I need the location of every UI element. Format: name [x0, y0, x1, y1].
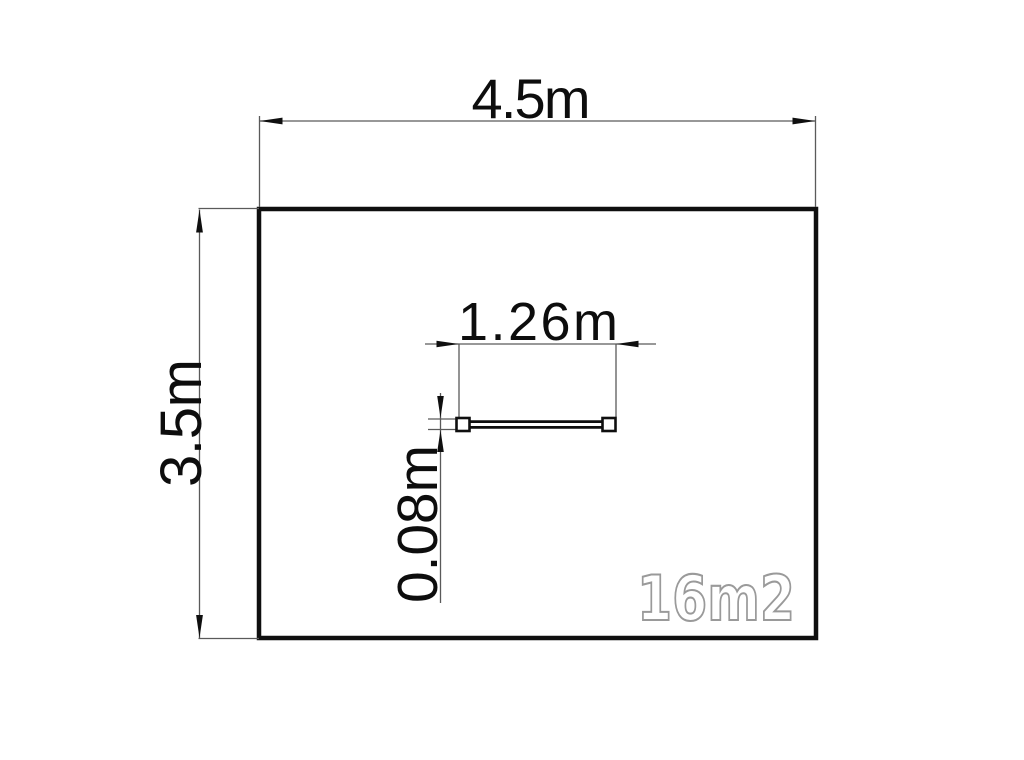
room-width-dimension: 4.5m	[260, 67, 816, 207]
arrow-up-icon	[196, 210, 203, 233]
room-height-dimension: 3.5m	[149, 209, 259, 639]
floor-plan-drawing: 4.5m 3.5m 1.26m 0.08m	[0, 0, 1024, 760]
arrow-down-icon	[196, 615, 203, 638]
window-end-left	[457, 418, 470, 431]
window-end-right	[603, 418, 616, 431]
window-width-dimension-label: 1.26m	[458, 292, 618, 352]
arrow-right-icon	[793, 118, 816, 125]
cad-viewport: 4.5m 3.5m 1.26m 0.08m	[0, 0, 1024, 760]
window-thickness-dimension-label: 0.08m	[386, 445, 450, 603]
room-width-dimension-label: 4.5m	[472, 67, 591, 130]
area-label: 16m2	[637, 562, 795, 635]
room-height-dimension-label: 3.5m	[149, 359, 214, 487]
arrow-left-icon	[260, 118, 283, 125]
